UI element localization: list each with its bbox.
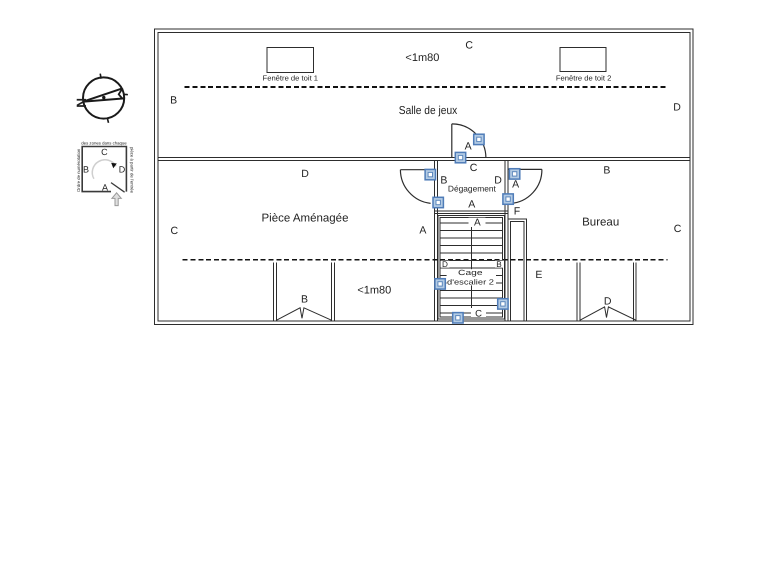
svg-text:Pièce Aménagée: Pièce Aménagée <box>262 212 349 224</box>
svg-text:B: B <box>170 95 177 107</box>
svg-text:A: A <box>465 141 472 153</box>
svg-text:C: C <box>101 147 108 157</box>
svg-text:C: C <box>674 223 682 235</box>
svg-text:D: D <box>604 296 612 308</box>
svg-text:A: A <box>474 218 481 229</box>
svg-text:C: C <box>470 162 478 174</box>
svg-text:Fenêtre de toit 2: Fenêtre de toit 2 <box>556 74 612 83</box>
svg-text:Bureau: Bureau <box>582 216 619 228</box>
svg-text:Salle de jeux: Salle de jeux <box>399 105 458 117</box>
svg-text:<1m80: <1m80 <box>357 284 391 296</box>
svg-text:F: F <box>514 205 520 217</box>
svg-text:B: B <box>603 164 610 176</box>
svg-text:Dégagement: Dégagement <box>448 184 497 194</box>
svg-text:B: B <box>440 175 447 187</box>
svg-text:D: D <box>494 174 502 186</box>
svg-text:N: N <box>74 98 89 108</box>
svg-text:D: D <box>119 164 126 174</box>
svg-text:B: B <box>301 294 308 306</box>
svg-text:A: A <box>419 225 426 237</box>
svg-text:C: C <box>475 308 482 319</box>
svg-text:B: B <box>496 260 502 269</box>
svg-text:A: A <box>468 199 475 211</box>
svg-text:d'escalier 2: d'escalier 2 <box>447 277 494 286</box>
svg-text:A: A <box>512 179 519 191</box>
svg-text:Ordre de numérotation: Ordre de numérotation <box>76 148 81 192</box>
svg-text:C: C <box>171 225 179 237</box>
svg-text:Fenêtre de toit 1: Fenêtre de toit 1 <box>263 74 319 83</box>
svg-text:D: D <box>301 168 309 180</box>
svg-text:des zones dans chaque: des zones dans chaque <box>81 141 127 146</box>
svg-text:pièce à partir de l'entrée: pièce à partir de l'entrée <box>130 147 135 194</box>
svg-text:B: B <box>83 164 89 174</box>
svg-text:D: D <box>673 102 681 114</box>
svg-text:C: C <box>465 39 473 51</box>
svg-text:A: A <box>102 183 108 193</box>
svg-text:Cage: Cage <box>458 268 483 277</box>
svg-text:<1m80: <1m80 <box>405 52 439 64</box>
svg-text:E: E <box>535 269 542 281</box>
svg-text:D: D <box>442 260 448 269</box>
